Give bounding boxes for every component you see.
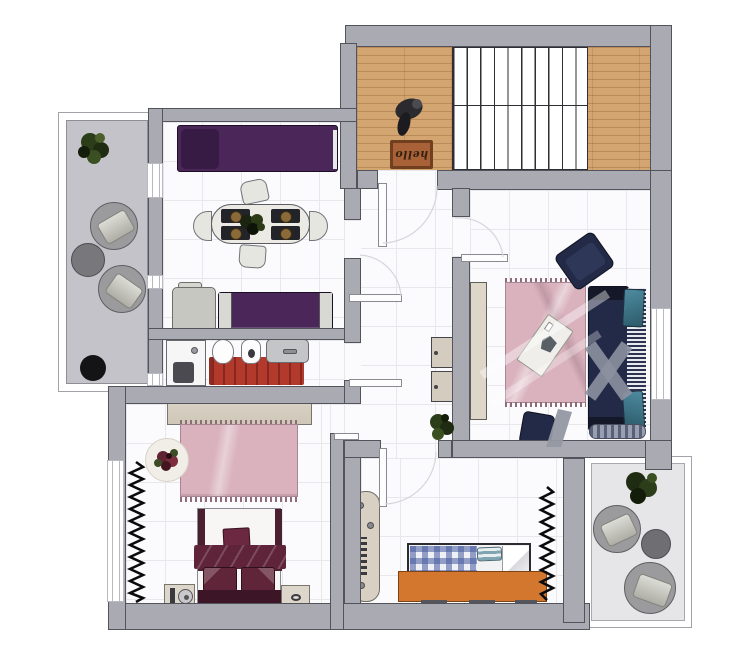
coat-rack-icon xyxy=(541,487,553,600)
coat-hook-icon xyxy=(392,95,425,137)
decor-overlay xyxy=(0,0,736,660)
plant-icon xyxy=(430,414,454,440)
plant-icon xyxy=(626,472,657,504)
plant-icon xyxy=(78,133,109,164)
flowers-icon xyxy=(154,449,178,471)
watermark xyxy=(479,290,627,447)
plant-icon xyxy=(240,214,265,235)
door-swing-arcs xyxy=(360,186,503,504)
floor-plan: hello xyxy=(0,0,736,660)
coat-rack-icon xyxy=(130,462,143,602)
